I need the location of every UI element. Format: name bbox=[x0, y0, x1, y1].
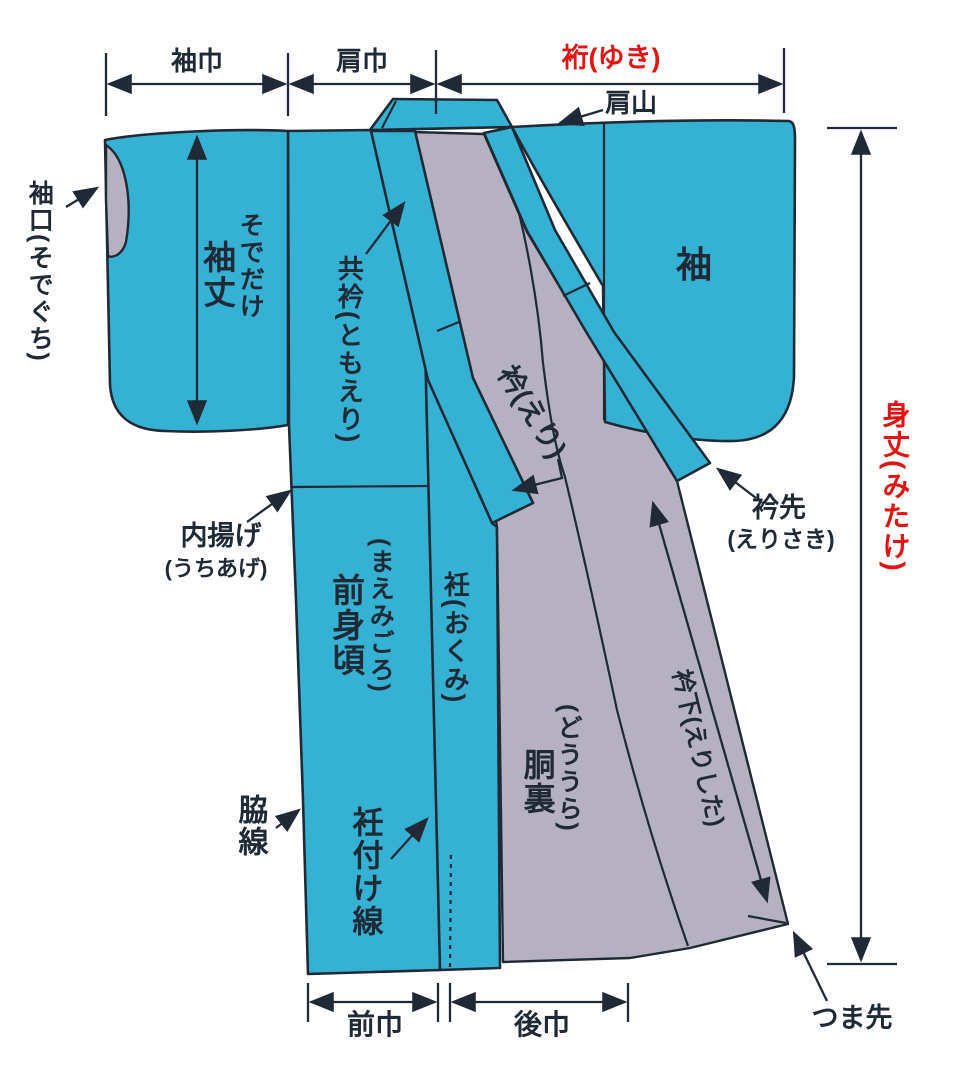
back-collar-top bbox=[370, 99, 512, 130]
label-mae-migoro-reading: (まえみごろ) bbox=[367, 538, 393, 694]
label-mitake: 身丈(みたけ) bbox=[880, 400, 909, 573]
sode-guchi-leader-arrow bbox=[66, 188, 97, 207]
label-okumi-tsuke-sen: 衽付け線 bbox=[348, 806, 381, 938]
waki-sen-leader-arrow bbox=[276, 810, 299, 828]
uchi-age-leader-arrow bbox=[247, 491, 290, 522]
kata-yama-leader-arrow bbox=[560, 110, 603, 123]
label-eri-saki: 衿先 bbox=[752, 494, 806, 522]
label-mae-migoro: 前身頃 bbox=[328, 573, 363, 678]
label-kata-haba: 肩巾 bbox=[336, 48, 388, 75]
label-mae-haba: 前巾 bbox=[347, 1010, 403, 1039]
label-okumi: 衽(おくみ) bbox=[441, 571, 468, 704]
eri-saki-leader-arrow bbox=[718, 469, 756, 498]
label-sode: 袖 bbox=[676, 246, 712, 284]
label-tomo-eri: 共衿(ともえり) bbox=[335, 255, 362, 444]
label-waki-sen: 脇線 bbox=[234, 794, 266, 858]
label-eri-saki-reading: (えりさき) bbox=[727, 527, 834, 551]
label-sode-take-reading: そでだけ bbox=[237, 212, 263, 320]
label-kata-yama: 肩山 bbox=[605, 90, 657, 117]
label-sode-take: 袖丈 bbox=[199, 240, 234, 310]
label-yuki: 裄(ゆき) bbox=[562, 44, 661, 72]
label-tsuma-saki: つま先 bbox=[812, 1004, 893, 1032]
label-do-ura: 胴裏 bbox=[520, 748, 554, 816]
label-do-ura-reading: (どううら) bbox=[555, 704, 581, 833]
label-uchi-age: 内揚げ bbox=[181, 522, 262, 550]
label-uchi-age-reading: (うちあげ) bbox=[165, 557, 268, 580]
label-sode-haba: 袖巾 bbox=[171, 48, 223, 75]
tsuma-saki-leader-arrow bbox=[794, 933, 827, 1001]
label-sode-guchi: 袖口(そでぐち) bbox=[26, 180, 52, 363]
label-ushiro-haba: 後巾 bbox=[514, 1010, 570, 1039]
kimono-diagram: 袖巾 肩巾 裄(ゆき) 肩山 袖口(そでぐち) そでだけ 袖丈 共衿(ともえり)… bbox=[0, 0, 972, 1080]
uchiage-seam-line bbox=[292, 486, 427, 487]
